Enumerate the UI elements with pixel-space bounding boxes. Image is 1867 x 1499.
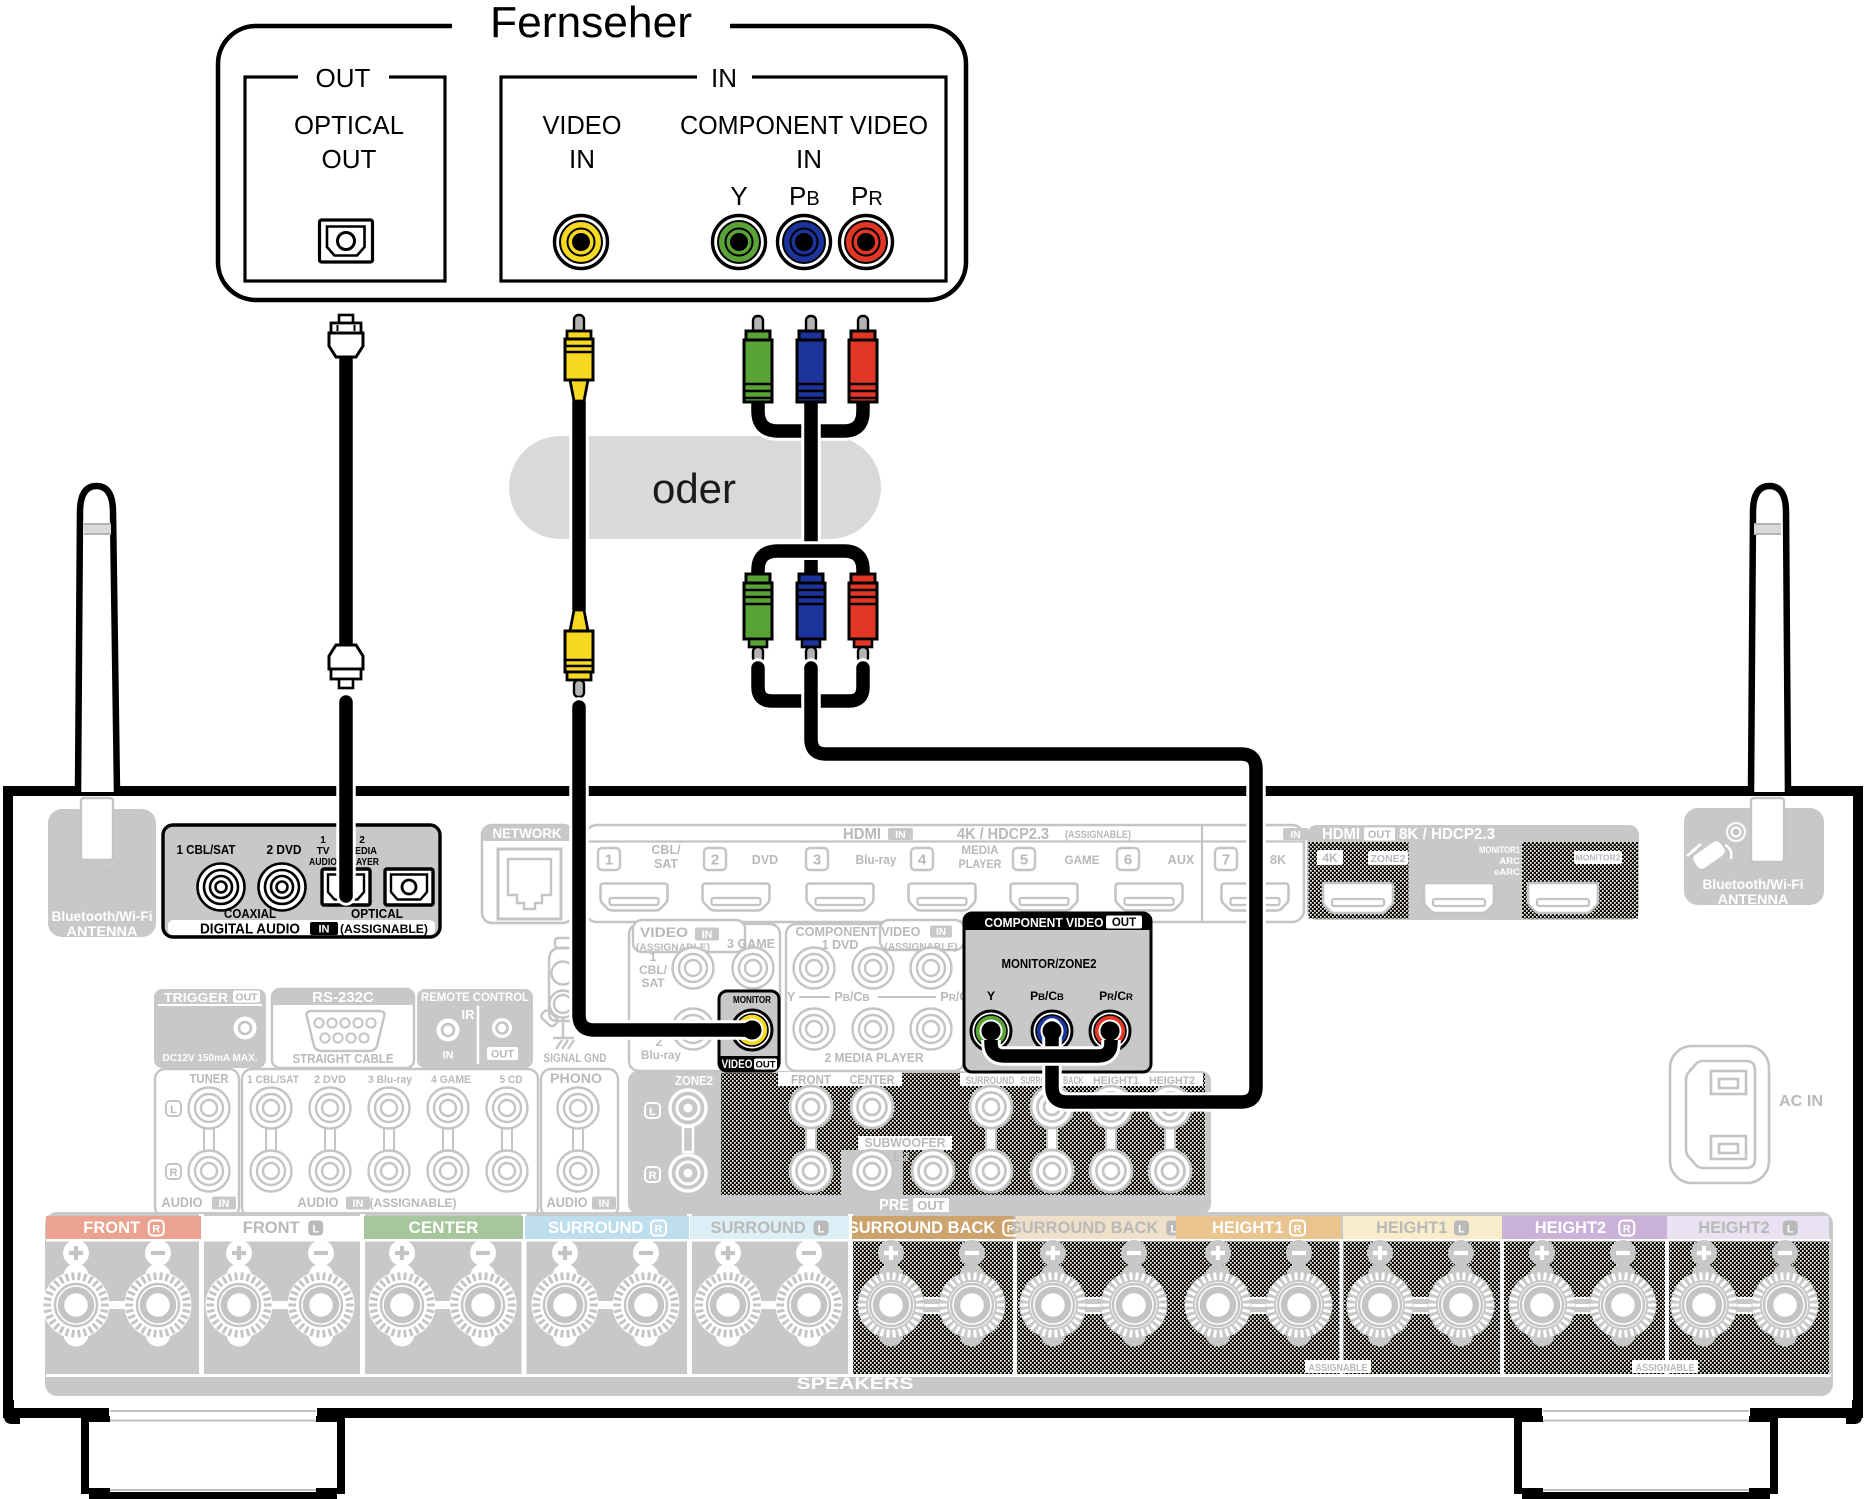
svg-text:Blu-ray: Blu-ray bbox=[856, 853, 897, 867]
svg-text:OUT: OUT bbox=[1112, 917, 1136, 929]
svg-text:ZONE2: ZONE2 bbox=[1370, 853, 1405, 865]
svg-text:OUT: OUT bbox=[322, 144, 377, 174]
svg-text:OPTICAL: OPTICAL bbox=[351, 907, 403, 921]
svg-text:AUDIO: AUDIO bbox=[162, 1195, 203, 1210]
svg-text:HEIGHT2: HEIGHT2 bbox=[1535, 1219, 1607, 1237]
svg-text:5 CD: 5 CD bbox=[500, 1074, 523, 1086]
svg-text:AUDIO: AUDIO bbox=[298, 1195, 339, 1210]
svg-text:5: 5 bbox=[1020, 852, 1028, 869]
svg-text:IN: IN bbox=[895, 829, 906, 841]
svg-text:R: R bbox=[655, 1224, 663, 1236]
svg-text:OUT: OUT bbox=[491, 1048, 515, 1060]
svg-text:Fernseher: Fernseher bbox=[490, 0, 692, 47]
svg-text:6: 6 bbox=[1124, 852, 1132, 869]
svg-text:2 DVD: 2 DVD bbox=[314, 1074, 346, 1086]
svg-text:OUT: OUT bbox=[917, 1198, 945, 1213]
svg-text:L: L bbox=[1458, 1224, 1465, 1236]
svg-text:1: 1 bbox=[892, 1150, 899, 1164]
svg-text:1 CBL/SAT: 1 CBL/SAT bbox=[247, 1074, 299, 1086]
svg-text:Blu-ray: Blu-ray bbox=[641, 1048, 681, 1062]
svg-text:(ASSIGNABLE): (ASSIGNABLE) bbox=[340, 922, 428, 936]
svg-text:CENTER: CENTER bbox=[409, 1218, 479, 1237]
svg-text:STRAIGHT CABLE: STRAIGHT CABLE bbox=[293, 1052, 394, 1066]
svg-text:PHONO: PHONO bbox=[550, 1071, 602, 1086]
svg-text:PB/CB: PB/CB bbox=[834, 990, 869, 1004]
svg-text:ARC: ARC bbox=[1499, 856, 1520, 867]
svg-text:OUT: OUT bbox=[235, 991, 258, 1003]
svg-text:HEIGHT1: HEIGHT1 bbox=[1212, 1219, 1284, 1237]
svg-text:IN: IN bbox=[936, 927, 946, 938]
svg-text:TRIGGER: TRIGGER bbox=[164, 990, 229, 1005]
svg-text:PB/CB: PB/CB bbox=[1030, 989, 1064, 1003]
svg-text:OUT: OUT bbox=[755, 1059, 775, 1070]
svg-text:IN: IN bbox=[711, 63, 737, 93]
svg-text:ANTENNA: ANTENNA bbox=[1718, 891, 1789, 907]
svg-text:HDMI: HDMI bbox=[1322, 826, 1360, 843]
svg-text:PR/CR: PR/CR bbox=[1099, 989, 1133, 1003]
svg-text:IN: IN bbox=[599, 1198, 610, 1210]
svg-text:DC12V 150mA MAX.: DC12V 150mA MAX. bbox=[163, 1052, 258, 1064]
svg-text:1 DVD: 1 DVD bbox=[822, 938, 859, 952]
svg-text:OUT: OUT bbox=[1368, 829, 1392, 841]
svg-text:8K: 8K bbox=[1270, 853, 1286, 867]
svg-text:SIGNAL GND: SIGNAL GND bbox=[544, 1051, 607, 1065]
svg-text:CBL/: CBL/ bbox=[651, 843, 681, 857]
svg-text:SAT: SAT bbox=[641, 976, 665, 990]
svg-text:OPTICAL: OPTICAL bbox=[294, 110, 404, 140]
svg-text:Y: Y bbox=[730, 181, 747, 211]
svg-text:IN: IN bbox=[569, 144, 595, 174]
svg-text:TV: TV bbox=[317, 846, 330, 857]
svg-text:COMPONENT VIDEO: COMPONENT VIDEO bbox=[680, 110, 928, 140]
svg-text:HEIGHT2: HEIGHT2 bbox=[1698, 1219, 1770, 1237]
svg-text:VIDEO: VIDEO bbox=[543, 110, 622, 140]
svg-text:IN: IN bbox=[1290, 829, 1301, 841]
svg-text:L: L bbox=[312, 1224, 319, 1236]
svg-text:REMOTE CONTROL: REMOTE CONTROL bbox=[421, 990, 529, 1004]
svg-text:Bluetooth/Wi-Fi: Bluetooth/Wi-Fi bbox=[52, 908, 153, 924]
svg-text:SUBWOOFER: SUBWOOFER bbox=[865, 1135, 947, 1150]
svg-text:2: 2 bbox=[359, 835, 365, 846]
svg-text:ASSIGNABLE: ASSIGNABLE bbox=[1309, 1362, 1368, 1374]
svg-text:(ASSIGNABLE): (ASSIGNABLE) bbox=[1065, 829, 1131, 841]
svg-text:L: L bbox=[649, 1106, 656, 1118]
svg-text:1: 1 bbox=[320, 835, 326, 846]
svg-text:(ASSIGNABLE): (ASSIGNABLE) bbox=[370, 1196, 457, 1210]
svg-text:AUDIO: AUDIO bbox=[547, 1195, 588, 1210]
svg-text:2 MEDIA PLAYER: 2 MEDIA PLAYER bbox=[825, 1051, 924, 1065]
svg-text:3: 3 bbox=[813, 852, 821, 869]
svg-text:IN: IN bbox=[702, 929, 713, 941]
svg-text:IN: IN bbox=[319, 923, 330, 935]
svg-text:R: R bbox=[170, 1167, 178, 1179]
svg-text:2 DVD: 2 DVD bbox=[267, 843, 302, 857]
svg-text:FRONT: FRONT bbox=[83, 1219, 140, 1237]
svg-text:4K / HDCP2.3: 4K / HDCP2.3 bbox=[957, 826, 1049, 843]
svg-text:HDMI: HDMI bbox=[843, 826, 881, 843]
svg-text:ANTENNA: ANTENNA bbox=[67, 923, 138, 939]
svg-text:COMPONENT VIDEO: COMPONENT VIDEO bbox=[985, 915, 1104, 930]
svg-text:R: R bbox=[152, 1224, 160, 1236]
svg-text:Y: Y bbox=[987, 989, 995, 1003]
svg-text:PRE: PRE bbox=[879, 1197, 909, 1214]
svg-text:IR: IR bbox=[462, 1007, 476, 1022]
svg-text:DVD: DVD bbox=[752, 853, 778, 867]
svg-text:eARC: eARC bbox=[1494, 867, 1520, 878]
svg-text:SURROUND: SURROUND bbox=[710, 1219, 805, 1237]
svg-text:1: 1 bbox=[650, 950, 657, 964]
svg-text:AUX: AUX bbox=[1168, 853, 1195, 867]
svg-text:R: R bbox=[649, 1170, 657, 1182]
svg-text:SURROUND BACK: SURROUND BACK bbox=[1011, 1219, 1159, 1237]
svg-text:ASSIGNABLE: ASSIGNABLE bbox=[1636, 1362, 1695, 1374]
svg-text:SURROUND BACK: SURROUND BACK bbox=[848, 1219, 996, 1237]
svg-text:RS-232C: RS-232C bbox=[312, 989, 374, 1006]
svg-text:2: 2 bbox=[903, 1150, 910, 1164]
svg-text:8K / HDCP2.3: 8K / HDCP2.3 bbox=[1399, 826, 1495, 843]
svg-text:NETWORK: NETWORK bbox=[493, 826, 562, 841]
svg-text:TUNER: TUNER bbox=[190, 1072, 229, 1086]
svg-text:DIGITAL AUDIO: DIGITAL AUDIO bbox=[200, 921, 300, 938]
svg-text:ZONE2: ZONE2 bbox=[675, 1074, 713, 1088]
svg-text:2: 2 bbox=[711, 852, 719, 869]
svg-text:3 Blu-ray: 3 Blu-ray bbox=[368, 1074, 413, 1086]
svg-text:L: L bbox=[818, 1224, 825, 1236]
svg-text:Bluetooth/Wi-Fi: Bluetooth/Wi-Fi bbox=[1703, 876, 1804, 892]
svg-text:OUT: OUT bbox=[316, 63, 371, 93]
svg-text:Y: Y bbox=[787, 990, 796, 1004]
svg-text:IN: IN bbox=[353, 1198, 364, 1210]
svg-text:4 GAME: 4 GAME bbox=[431, 1074, 471, 1086]
svg-text:1: 1 bbox=[605, 852, 613, 869]
svg-text:SPEAKERS: SPEAKERS bbox=[797, 1375, 914, 1393]
svg-text:R: R bbox=[1294, 1224, 1302, 1236]
svg-text:AUDIO: AUDIO bbox=[309, 857, 337, 868]
svg-text:MEDIA: MEDIA bbox=[962, 845, 999, 857]
svg-text:1 CBL/SAT: 1 CBL/SAT bbox=[177, 843, 236, 857]
svg-text:R: R bbox=[1623, 1224, 1631, 1236]
svg-text:MONITOR1: MONITOR1 bbox=[1479, 845, 1521, 856]
svg-text:IN: IN bbox=[796, 144, 822, 174]
svg-text:SURROUND: SURROUND bbox=[548, 1219, 643, 1237]
svg-text:COMPONENT VIDEO: COMPONENT VIDEO bbox=[796, 925, 921, 939]
svg-text:SAT: SAT bbox=[654, 857, 678, 871]
svg-text:VIDEO: VIDEO bbox=[722, 1059, 753, 1071]
svg-text:4K: 4K bbox=[1322, 851, 1338, 865]
svg-text:L: L bbox=[1787, 1224, 1794, 1236]
svg-text:GAME: GAME bbox=[1065, 853, 1100, 867]
svg-text:MONITOR/ZONE2: MONITOR/ZONE2 bbox=[1002, 957, 1097, 971]
svg-text:CBL/: CBL/ bbox=[639, 963, 668, 977]
svg-text:VIDEO: VIDEO bbox=[640, 924, 688, 940]
svg-text:IN: IN bbox=[219, 1198, 230, 1210]
svg-text:IN: IN bbox=[443, 1049, 454, 1061]
svg-text:HEIGHT1: HEIGHT1 bbox=[1376, 1219, 1448, 1237]
svg-text:AC IN: AC IN bbox=[1779, 1093, 1823, 1110]
svg-text:MONITOR2: MONITOR2 bbox=[1576, 853, 1621, 863]
svg-text:7: 7 bbox=[1222, 852, 1230, 869]
svg-text:L: L bbox=[170, 1104, 177, 1116]
svg-text:4: 4 bbox=[918, 852, 927, 869]
svg-text:PLAYER: PLAYER bbox=[959, 859, 1003, 871]
svg-text:MONITOR: MONITOR bbox=[733, 994, 771, 1006]
svg-text:FRONT: FRONT bbox=[243, 1219, 300, 1237]
svg-text:oder: oder bbox=[652, 465, 736, 512]
